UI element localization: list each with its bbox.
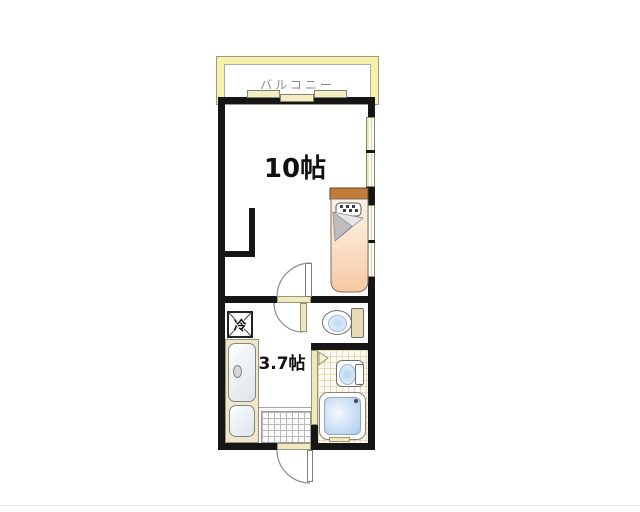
bed bbox=[330, 188, 368, 292]
window-pane bbox=[280, 94, 313, 102]
refrigerator: 冷 bbox=[227, 311, 253, 338]
washbasin-cabinet bbox=[355, 364, 364, 385]
bed-mattress bbox=[331, 199, 368, 292]
blanket-fold bbox=[333, 212, 363, 241]
floor-plan: バルコニー 冷 bbox=[0, 0, 640, 512]
blanket-fold-shadow bbox=[333, 212, 352, 241]
kitchen-stove-space bbox=[229, 405, 255, 437]
wall-stub-horizontal bbox=[225, 251, 255, 257]
wall-left bbox=[218, 97, 225, 450]
pillow-pattern bbox=[340, 205, 358, 212]
entrance-threshold bbox=[277, 443, 311, 450]
toilet-door-leaf bbox=[300, 303, 307, 332]
toilet-door-swing-arc bbox=[274, 303, 303, 332]
wall-bottom-left bbox=[218, 443, 277, 450]
toilet-tank bbox=[351, 308, 364, 338]
refrigerator-label: 冷 bbox=[233, 315, 246, 334]
main-room-door-leaf bbox=[305, 263, 312, 297]
wall-window-separator bbox=[366, 187, 375, 205]
sink-drain bbox=[233, 365, 242, 378]
window-stile-mark bbox=[366, 150, 375, 153]
genkan-tile-floor bbox=[261, 411, 311, 443]
toilet-bowl-inner bbox=[328, 315, 347, 332]
pillow bbox=[336, 203, 361, 216]
main-room-label: 10帖 bbox=[245, 148, 345, 185]
kitchen-room-label: 3.7帖 bbox=[250, 349, 314, 374]
wall-middle-right bbox=[311, 296, 375, 303]
bed-headboard bbox=[330, 188, 368, 199]
bathtub bbox=[319, 392, 366, 440]
entrance-door-swing-arc bbox=[277, 450, 310, 483]
bathtub-step bbox=[329, 437, 350, 442]
wall-bottom-right bbox=[311, 443, 375, 450]
doorway-threshold-main bbox=[277, 296, 311, 303]
wall-middle-left bbox=[218, 296, 277, 303]
washbasin-bowl bbox=[339, 364, 356, 385]
wall-wc-bath-divider bbox=[311, 343, 373, 350]
balcony-sliding-window bbox=[247, 90, 347, 102]
bathtub-faucet bbox=[354, 399, 358, 403]
window-pane bbox=[247, 90, 280, 98]
window-pane bbox=[314, 90, 347, 98]
entrance-door-leaf bbox=[307, 450, 313, 482]
image-bottom-edge bbox=[0, 505, 640, 506]
wall-stub-vertical bbox=[249, 208, 255, 257]
wall-bath-left-lower bbox=[311, 423, 318, 443]
window-stile-mark bbox=[366, 240, 375, 243]
